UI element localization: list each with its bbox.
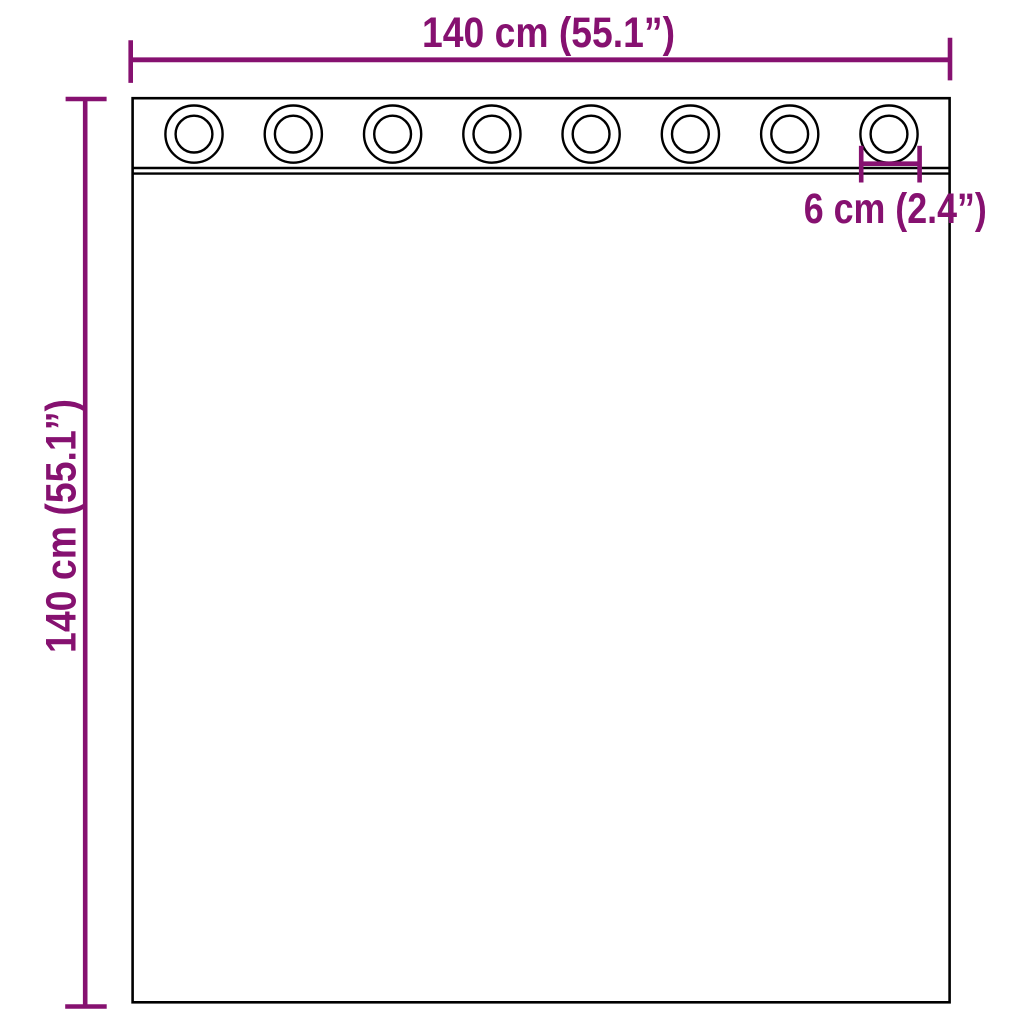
- svg-text:6 cm (2.4”): 6 cm (2.4”): [804, 186, 987, 233]
- svg-text:140 cm (55.1”): 140 cm (55.1”): [422, 10, 675, 57]
- svg-text:140 cm (55.1”): 140 cm (55.1”): [39, 399, 86, 653]
